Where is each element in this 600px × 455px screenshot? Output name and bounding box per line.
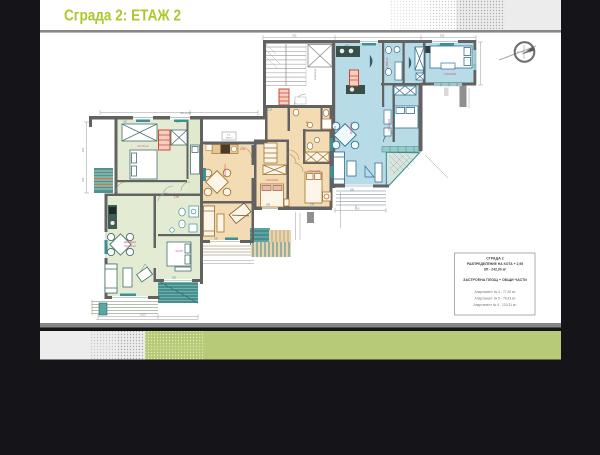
svg-text:СПАЛНЯ: СПАЛНЯ [266,178,279,182]
svg-text:Апартамент № 6 - 120,31 м²: Апартамент № 6 - 120,31 м² [474,303,518,307]
svg-text:Апартамент № 4 - 77,30 м²: Апартамент № 4 - 77,30 м² [475,290,517,294]
svg-text:2,20: 2,20 [240,148,245,151]
svg-text:Сграда 2: ЕТАЖ 2: Сграда 2: ЕТАЖ 2 [64,8,181,25]
svg-text:380: 380 [437,45,442,48]
svg-text:НВ +2,95: НВ +2,95 [180,111,191,115]
svg-text:510: 510 [355,207,360,211]
svg-text:320: 320 [350,189,355,192]
svg-text:780: 780 [292,34,297,38]
svg-text:340: 340 [115,163,118,168]
svg-text:305: 305 [172,277,177,280]
svg-text:1,95: 1,95 [174,196,179,199]
svg-text:асансьор: асансьор [314,68,317,80]
svg-text:310: 310 [474,63,477,68]
svg-text:СПАЛНЯ: СПАЛНЯ [444,72,457,76]
svg-text:1010: 1010 [140,313,146,317]
svg-text:СПАЛНЯ: СПАЛНЯ [387,119,391,132]
svg-text:Апартамент № 5 - 78,43 м²: Апартамент № 5 - 78,43 м² [475,297,517,301]
svg-text:12,05: 12,05 [175,249,183,253]
svg-text:1,85/2,10: 1,85/2,10 [386,57,389,68]
svg-text:555: 555 [440,34,445,38]
svg-text:12,70 м²: 12,70 м² [137,144,148,148]
svg-text:320: 320 [214,238,219,241]
svg-text:СПАЛНЯ: СПАЛНЯ [308,169,321,173]
svg-text:405: 405 [106,245,109,250]
svg-text:280: 280 [176,121,181,124]
svg-text:ЗП - 242,00 м²: ЗП - 242,00 м² [484,268,507,272]
svg-text:ЗАСТРОЕНА ПЛОЩ + ОБЩИ ЧАСТИ: ЗАСТРОЕНА ПЛОЩ + ОБЩИ ЧАСТИ [463,278,527,282]
svg-text:360: 360 [124,294,129,297]
svg-text:ДНЕВНА: ДНЕВНА [349,122,353,134]
svg-text:364: 364 [419,115,422,120]
svg-text:315: 315 [202,155,205,160]
svg-text:215: 215 [268,109,273,112]
svg-text:515: 515 [334,125,337,130]
svg-text:298: 298 [266,204,271,207]
svg-text:405: 405 [345,45,350,48]
svg-text:276: 276 [310,204,315,207]
svg-text:340: 340 [81,177,85,182]
svg-text:РАЗПРЕДЕЛЕНИЕ НА КОТА + 2,95: РАЗПРЕДЕЛЕНИЕ НА КОТА + 2,95 [467,262,523,266]
svg-text:СГРАДА 2: СГРАДА 2 [486,257,504,261]
svg-text:ЕЛ.: ЕЛ. [227,135,231,137]
svg-text:22,05 м²: 22,05 м² [124,244,135,248]
svg-text:1,45: 1,45 [306,121,309,126]
svg-text:ДНЕВНА: ДНЕВНА [223,164,227,176]
svg-text:405: 405 [81,147,85,152]
svg-text:305: 305 [123,121,128,124]
svg-text:ТАБЛО: ТАБЛО [225,137,233,140]
